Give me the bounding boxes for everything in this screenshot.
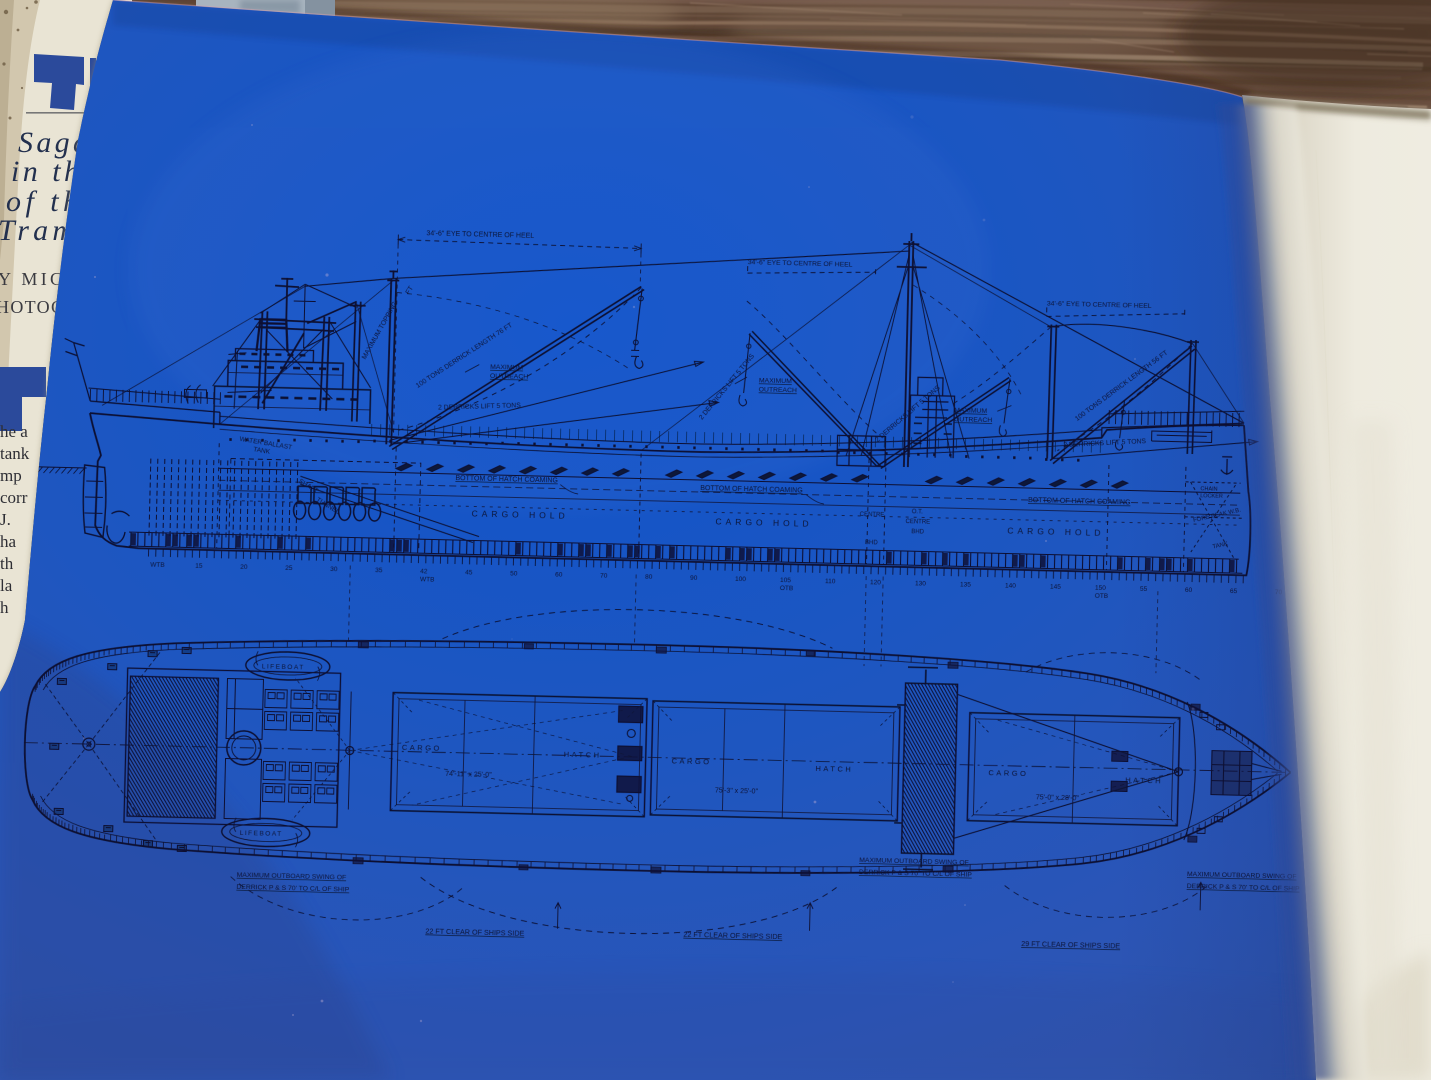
svg-text:42: 42: [420, 568, 428, 575]
svg-text:OUTREACH: OUTREACH: [954, 416, 992, 424]
svg-text:50: 50: [510, 570, 518, 577]
svg-text:60: 60: [1185, 587, 1193, 594]
svg-text:ha: ha: [0, 532, 17, 551]
svg-text:65: 65: [1230, 588, 1238, 595]
svg-text:70: 70: [600, 573, 608, 580]
svg-text:CENTRE: CENTRE: [860, 512, 885, 519]
svg-text:15: 15: [195, 563, 203, 570]
svg-text:LIFEBOAT: LIFEBOAT: [262, 663, 305, 671]
svg-text:LIFEBOAT: LIFEBOAT: [240, 830, 283, 838]
svg-text:he a: he a: [0, 422, 28, 441]
svg-text:HOTOG: HOTOG: [0, 297, 64, 317]
svg-text:tank: tank: [0, 444, 30, 463]
svg-text:74'-11" x 25'-0": 74'-11" x 25'-0": [445, 771, 492, 779]
svg-text:OUTREACH: OUTREACH: [759, 386, 797, 394]
svg-text:WTB: WTB: [150, 562, 165, 569]
svg-text:100: 100: [735, 576, 746, 583]
svg-text:35: 35: [375, 567, 383, 574]
svg-text:corr: corr: [0, 488, 28, 507]
svg-text:75'-0" x 28'-0": 75'-0" x 28'-0": [1036, 794, 1080, 802]
svg-text:CARGO: CARGO: [672, 756, 712, 766]
svg-text:120: 120: [870, 579, 881, 586]
svg-text:130: 130: [915, 580, 926, 587]
svg-text:20: 20: [240, 564, 248, 571]
svg-text:CARGO: CARGO: [402, 743, 442, 753]
svg-text:MAXIMUM: MAXIMUM: [490, 364, 523, 372]
svg-text:60: 60: [555, 571, 563, 578]
svg-text:HATCH: HATCH: [815, 764, 853, 774]
svg-text:MAXIMUM: MAXIMUM: [954, 407, 987, 415]
svg-text:th: th: [0, 554, 14, 573]
svg-text:O.T.: O.T.: [912, 509, 923, 515]
svg-text:mp: mp: [0, 466, 22, 485]
svg-text:Y MIC: Y MIC: [0, 269, 62, 289]
svg-text:80: 80: [645, 574, 653, 581]
svg-text:30: 30: [330, 566, 338, 573]
svg-text:140: 140: [1005, 582, 1016, 589]
svg-text:HATCH: HATCH: [1125, 775, 1163, 785]
svg-text:Tram: Tram: [0, 214, 74, 247]
svg-text:la: la: [0, 576, 13, 595]
svg-text:LOCKER: LOCKER: [1200, 493, 1223, 500]
svg-text:25: 25: [285, 565, 293, 572]
svg-text:45: 45: [465, 569, 473, 576]
svg-text:145: 145: [1050, 584, 1061, 591]
svg-text:BHD: BHD: [911, 529, 924, 535]
svg-text:105: 105: [780, 577, 791, 584]
svg-text:J.: J.: [0, 510, 11, 529]
svg-text:OTB: OTB: [780, 585, 794, 592]
svg-text:CARGO: CARGO: [988, 768, 1028, 778]
svg-text:HATCH: HATCH: [564, 750, 602, 760]
svg-text:WTB: WTB: [420, 576, 435, 583]
svg-text:CENTRE: CENTRE: [905, 519, 930, 526]
svg-text:h: h: [0, 598, 9, 617]
svg-text:CHAIN: CHAIN: [1200, 486, 1217, 492]
svg-text:75'-3" x 25'-0": 75'-3" x 25'-0": [715, 787, 759, 795]
svg-text:110: 110: [825, 578, 836, 585]
svg-text:90: 90: [690, 575, 698, 582]
svg-text:55: 55: [1140, 586, 1148, 593]
svg-text:MAXIMUM: MAXIMUM: [759, 377, 792, 385]
svg-text:OTB: OTB: [1095, 593, 1109, 600]
svg-text:150: 150: [1095, 585, 1106, 592]
svg-text:BHD: BHD: [865, 540, 878, 546]
svg-text:135: 135: [960, 581, 971, 588]
svg-text:OUTREACH: OUTREACH: [490, 373, 528, 381]
